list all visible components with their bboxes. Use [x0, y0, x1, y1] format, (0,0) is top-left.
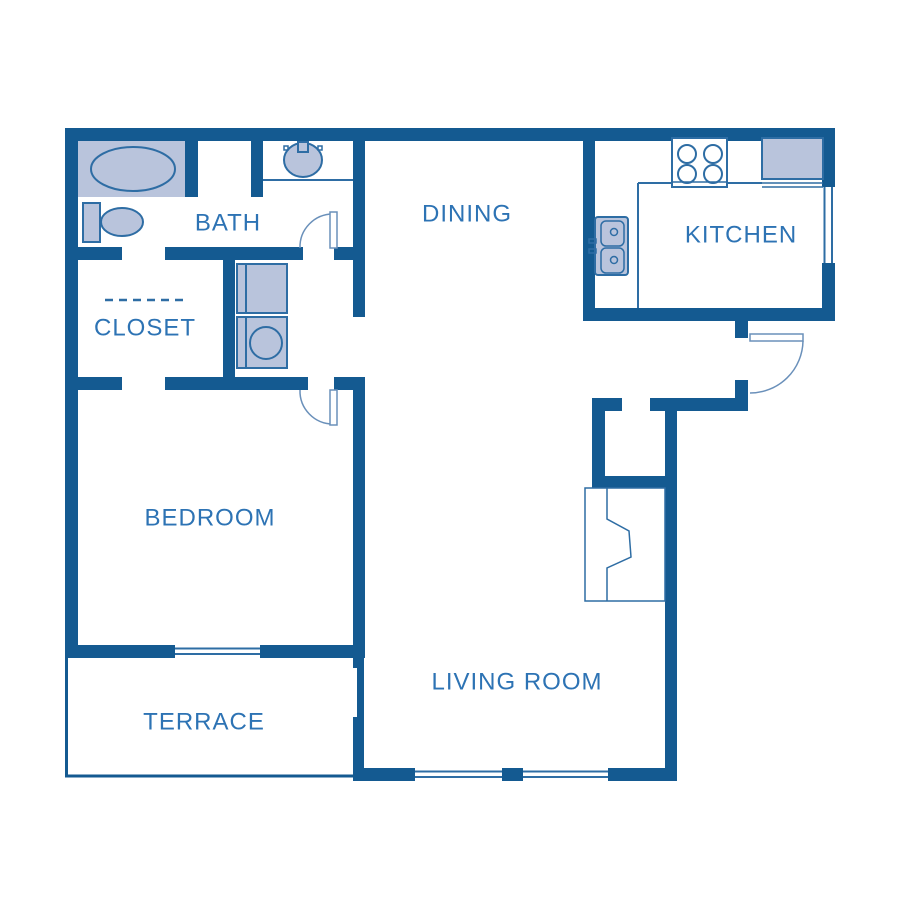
- wall-entry-b: [650, 398, 748, 411]
- wall-left: [65, 128, 78, 658]
- wall-entry-closet-bottom: [592, 476, 677, 488]
- wall-living-east: [665, 411, 677, 781]
- wall-bedroom-bottom-b: [260, 645, 360, 658]
- wall-living-west-notch: [353, 668, 357, 717]
- wall-kitchen-left: [583, 141, 595, 308]
- fireplace: [585, 488, 665, 601]
- wall-entry-closet-west: [592, 411, 605, 476]
- wall-entry-door-stub-bottom: [735, 380, 748, 398]
- entry-door: [750, 334, 803, 393]
- living-room-window-2: [523, 768, 608, 781]
- label-bath: BATH: [195, 209, 261, 236]
- wall-bath-door-jamb: [334, 247, 365, 260]
- label-living-room: LIVING ROOM: [431, 668, 602, 695]
- bedroom-door: [300, 390, 337, 425]
- wall-kitchen-bottom: [583, 308, 835, 321]
- wall-bath-bottom-a: [65, 247, 122, 260]
- label-kitchen: KITCHEN: [685, 221, 797, 248]
- kitchen-window: [822, 187, 835, 263]
- kitchen-sink-double-basin: [589, 217, 628, 275]
- bedroom-terrace-window: [175, 645, 260, 658]
- stacked-washer-dryer: [237, 264, 287, 368]
- refrigerator: [762, 138, 823, 187]
- floor-plan-drawing: BATH CLOSET DINING KITCHEN BEDROOM TERRA…: [0, 0, 900, 900]
- wall-bedroom-bottom-a: [65, 645, 175, 658]
- wall-bedroom-top-b: [165, 377, 308, 390]
- toilet: [83, 203, 143, 242]
- wall-entry-a: [592, 398, 622, 411]
- label-dining: DINING: [422, 200, 512, 227]
- wall-laundry-west: [223, 247, 235, 390]
- living-room-window-1: [415, 768, 502, 781]
- wall-vanity-stub: [251, 141, 263, 197]
- wall-bedroom-top-a: [65, 377, 122, 390]
- wall-living-bottom-b: [502, 768, 523, 781]
- wall-entry-door-stub-top: [735, 321, 748, 338]
- stove-4-burner: [672, 138, 727, 187]
- wall-dining-hall: [353, 128, 365, 317]
- wall-tub-stub: [185, 141, 198, 197]
- bath-door: [300, 212, 337, 248]
- floor-plan: BATH CLOSET DINING KITCHEN BEDROOM TERRA…: [0, 0, 900, 900]
- wall-bedroom-right: [353, 377, 365, 658]
- bathroom-sink-vanity: [263, 142, 353, 180]
- label-terrace: TERRACE: [143, 708, 265, 735]
- label-closet: CLOSET: [94, 314, 196, 341]
- label-bedroom: BEDROOM: [144, 504, 275, 531]
- bathtub: [78, 141, 185, 197]
